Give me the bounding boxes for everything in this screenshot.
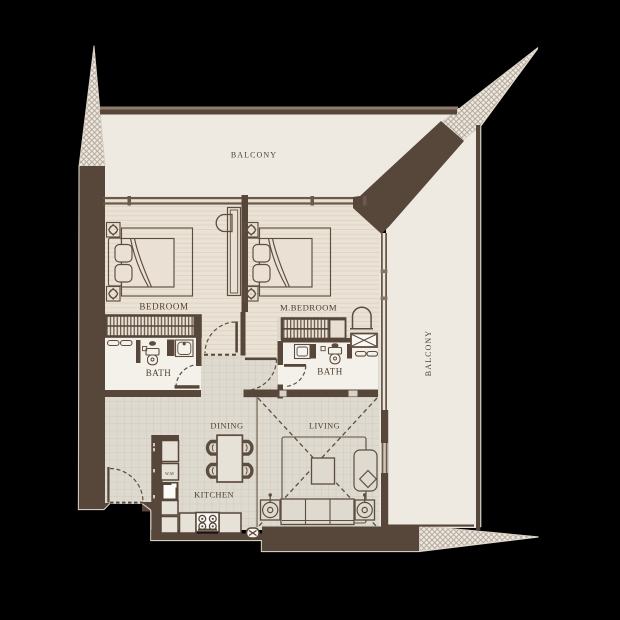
svg-text:BEDROOM: BEDROOM: [139, 302, 188, 312]
svg-text:W.M: W.M: [165, 471, 174, 476]
svg-text:M.BEDROOM: M.BEDROOM: [280, 303, 337, 313]
svg-text:DINING: DINING: [210, 420, 243, 430]
svg-text:KITCHEN: KITCHEN: [194, 489, 234, 499]
svg-text:LIVING: LIVING: [309, 421, 340, 430]
svg-text:BALCONY: BALCONY: [231, 151, 277, 160]
svg-text:BATH: BATH: [146, 368, 172, 378]
svg-text:BATH: BATH: [317, 366, 343, 376]
svg-text:BALCONY: BALCONY: [424, 330, 433, 376]
